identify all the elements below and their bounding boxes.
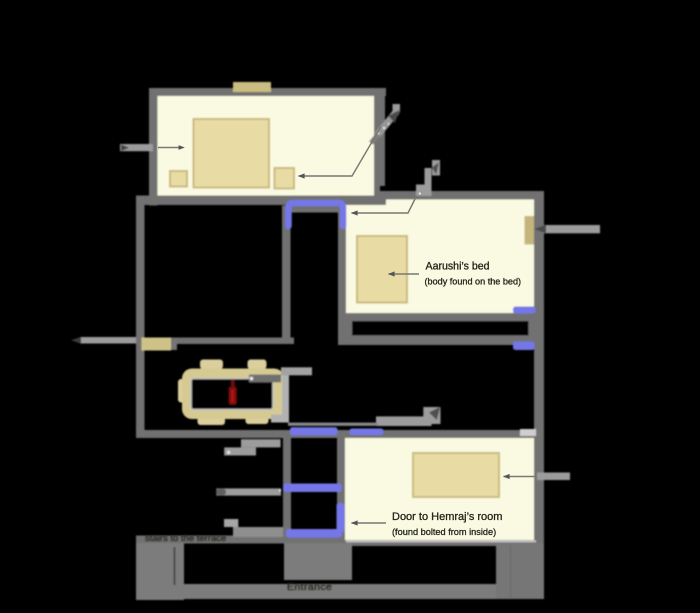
svg-text:Entrance: Entrance: [287, 581, 332, 593]
svg-text:(body found on the bed): (body found on the bed): [425, 277, 522, 287]
svg-text:stairs to the terrace: stairs to the terrace: [145, 533, 226, 544]
svg-text:Aarushi’s bed: Aarushi’s bed: [426, 261, 490, 273]
svg-text:(found bolted from inside): (found bolted from inside): [392, 527, 496, 537]
svg-text:Door to Hemraj’s room: Door to Hemraj’s room: [392, 511, 502, 523]
